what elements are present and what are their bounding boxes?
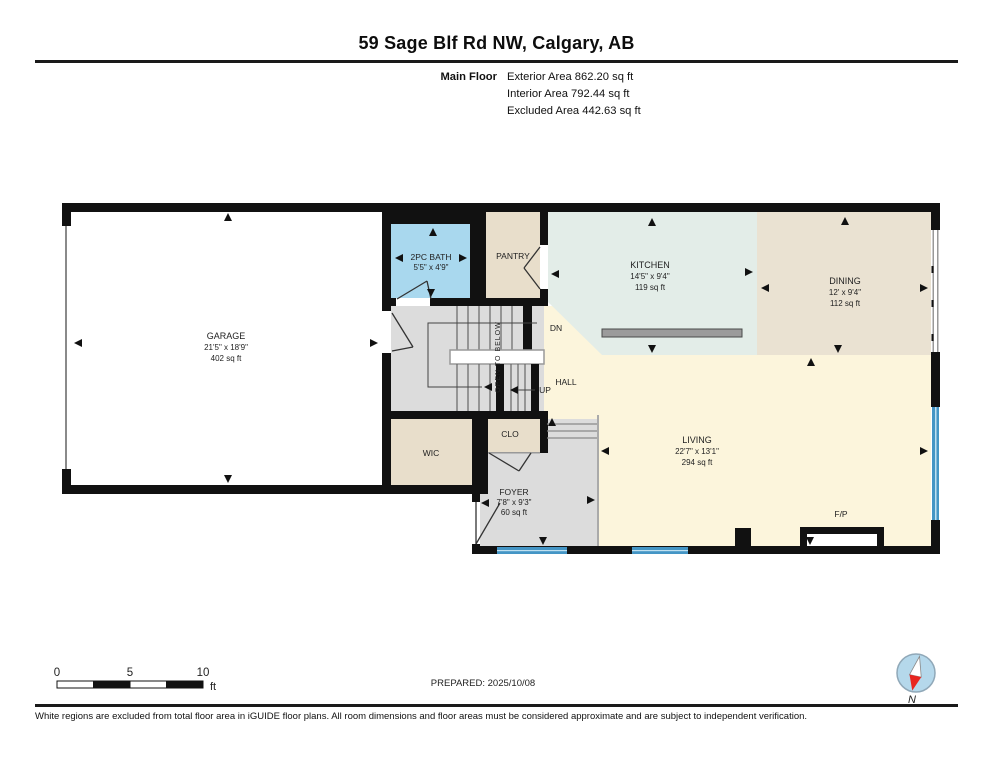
svg-text:2PC BATH: 2PC BATH: [411, 252, 452, 262]
scale-tick-5: 5: [127, 667, 133, 679]
wall-bath-right: [470, 212, 478, 306]
open-to-below-label: OPEN TO BELOW: [495, 321, 502, 392]
kitchen-label: KITCHEN 14'5" x 9'4" 119 sq ft: [630, 260, 670, 292]
svg-text:GARAGE: GARAGE: [207, 331, 246, 341]
svg-text:12' x 9'4": 12' x 9'4": [829, 288, 861, 297]
wall-pillar: [735, 528, 751, 547]
wall-stairs-bottom: [382, 411, 548, 419]
svg-text:14'5" x 9'4": 14'5" x 9'4": [630, 272, 670, 281]
bath-door-opening: [396, 298, 430, 306]
prepared-date: PREPARED: 2025/10/08: [383, 678, 583, 689]
svg-text:LIVING: LIVING: [682, 435, 712, 445]
svg-text:KITCHEN: KITCHEN: [630, 260, 670, 270]
foyer-living-divider: [597, 415, 599, 546]
stairs-up-label: UP: [539, 385, 551, 395]
living-right-window: [932, 407, 939, 520]
wall-wic-clo: [472, 411, 488, 494]
wall-right-lower: [931, 520, 940, 554]
svg-text:FOYER: FOYER: [499, 487, 528, 497]
floor-plan-drawing: OPEN TO BELOW: [0, 0, 993, 768]
dining-label: DINING 12' x 9'4" 112 sq ft: [829, 276, 861, 308]
garage-entry-opening: [382, 311, 391, 353]
wall-clo-right: [540, 411, 548, 453]
kitchen-island-counter: [602, 329, 742, 337]
pantry-label: PANTRY: [496, 251, 530, 261]
scale-tick-0: 0: [54, 667, 60, 679]
svg-text:294 sq ft: 294 sq ft: [682, 458, 713, 467]
wall-right-mid: [931, 352, 940, 407]
svg-text:402 sq ft: 402 sq ft: [211, 354, 242, 363]
wall-right-upper: [931, 203, 940, 230]
clo-threshold: [488, 452, 540, 454]
disclaimer-text: White regions are excluded from total fl…: [35, 711, 807, 722]
living-bottom-window: [632, 547, 688, 554]
wall-stairwell-stub: [523, 306, 532, 352]
svg-text:7'8" x 9'3": 7'8" x 9'3": [497, 498, 532, 507]
hall-label: HALL: [555, 377, 577, 387]
svg-text:DINING: DINING: [829, 276, 861, 286]
stair-divider-right: [531, 364, 539, 411]
pantry-door-opening: [540, 245, 548, 289]
svg-text:119 sq ft: 119 sq ft: [635, 283, 666, 292]
wic-label: WIC: [423, 448, 440, 458]
svg-text:112 sq ft: 112 sq ft: [830, 299, 861, 308]
floorplan-page: 59 Sage Blf Rd NW, Calgary, AB Main Floo…: [0, 0, 993, 768]
garage-door-panel: [65, 226, 67, 469]
svg-text:21'5" x 18'9": 21'5" x 18'9": [204, 343, 248, 352]
foyer-label: FOYER 7'8" x 9'3" 60 sq ft: [497, 487, 532, 517]
dining-window: [931, 230, 940, 352]
wall-top: [62, 203, 940, 212]
svg-text:22'7" x 13'1": 22'7" x 13'1": [675, 447, 719, 456]
svg-text:60 sq ft: 60 sq ft: [501, 508, 528, 517]
svg-text:5'5" x 4'9": 5'5" x 4'9": [414, 263, 449, 272]
scale-bar: 0 5 10 ft: [54, 667, 216, 693]
scale-tick-10: 10: [197, 667, 210, 679]
foyer-window: [497, 547, 567, 554]
fireplace-label: F/P: [834, 509, 848, 519]
clo-label: CLO: [501, 429, 519, 439]
stairs-dn-label: DN: [550, 323, 562, 333]
compass-icon: N: [897, 654, 935, 706]
wall-pantry-left: [478, 203, 486, 306]
scale-unit-label: ft: [210, 681, 216, 693]
footer-divider: [35, 704, 958, 707]
wall-bath-top: [382, 212, 478, 224]
wall-garage-bottom: [62, 485, 480, 494]
